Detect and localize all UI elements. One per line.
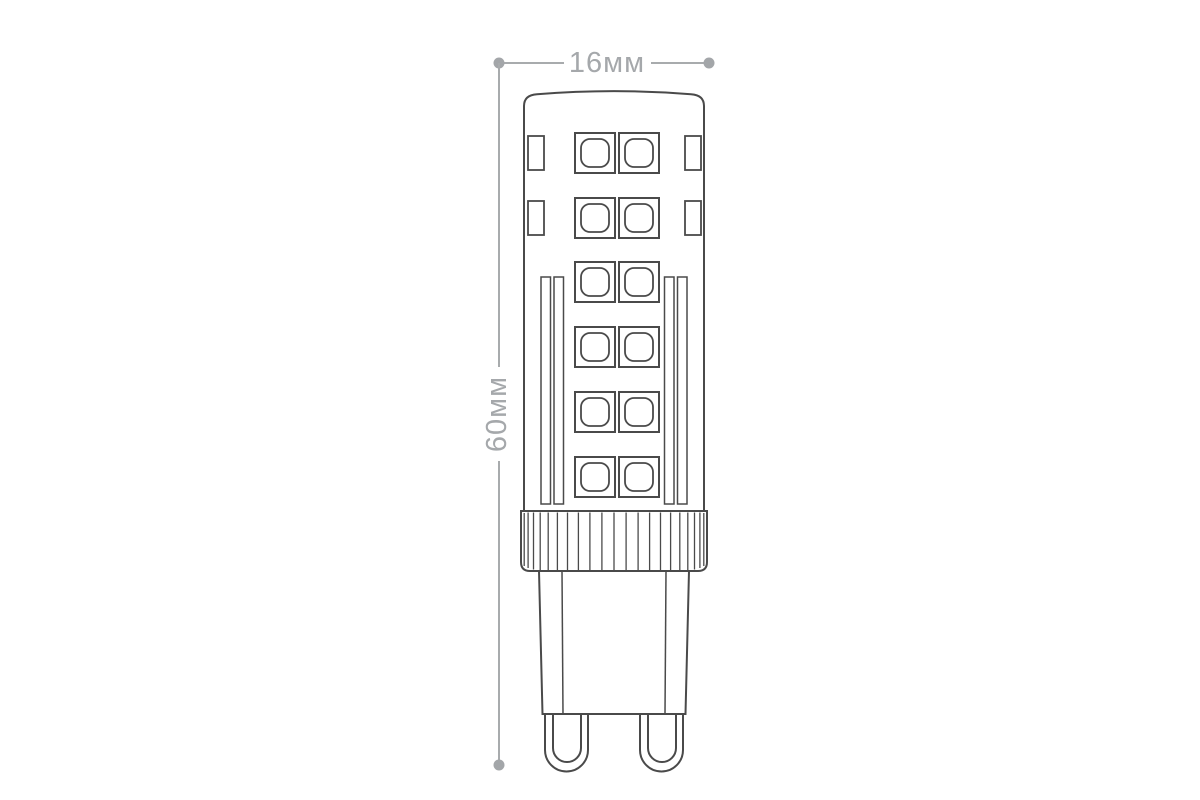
width-dimension-dot-right xyxy=(704,58,715,69)
led-chip-lens xyxy=(625,333,653,361)
pin-loop-right-inner xyxy=(648,714,676,762)
led-chip-lens xyxy=(581,398,609,426)
led-chip-lens xyxy=(625,463,653,491)
side-led-strip xyxy=(678,277,688,504)
led-chip-lens xyxy=(581,204,609,232)
ribbed-collar xyxy=(521,511,707,571)
led-chip-lens xyxy=(581,268,609,296)
width-dimension: 16мм xyxy=(494,47,715,79)
side-led-chip xyxy=(528,136,544,170)
bulb-body xyxy=(524,91,704,511)
led-chip-lens xyxy=(581,463,609,491)
side-led-chip xyxy=(685,136,701,170)
pin-loop-left-inner xyxy=(553,714,581,762)
led-chip-lens xyxy=(625,398,653,426)
height-dimension-dot-bottom xyxy=(494,760,505,771)
side-led-chip xyxy=(528,201,544,235)
side-led-strip xyxy=(554,277,564,504)
bulb-dimension-diagram: 16мм 60мм xyxy=(0,0,1200,800)
base-facet-line xyxy=(562,571,563,714)
led-chip-lens xyxy=(581,139,609,167)
height-dimension: 60мм xyxy=(481,63,513,771)
base xyxy=(539,571,689,714)
led-chip-lens xyxy=(625,268,653,296)
led-chip-lens xyxy=(625,204,653,232)
width-dimension-label: 16мм xyxy=(569,47,645,79)
diagram-canvas: 16мм 60мм xyxy=(0,0,1200,800)
side-led-chip xyxy=(685,201,701,235)
base-facet-line xyxy=(665,571,666,714)
led-chip-lens xyxy=(581,333,609,361)
height-dimension-label: 60мм xyxy=(481,376,513,452)
side-led-strip xyxy=(541,277,551,504)
g9-pins xyxy=(545,714,683,772)
led-chip-lens xyxy=(625,139,653,167)
side-led-strip xyxy=(665,277,675,504)
